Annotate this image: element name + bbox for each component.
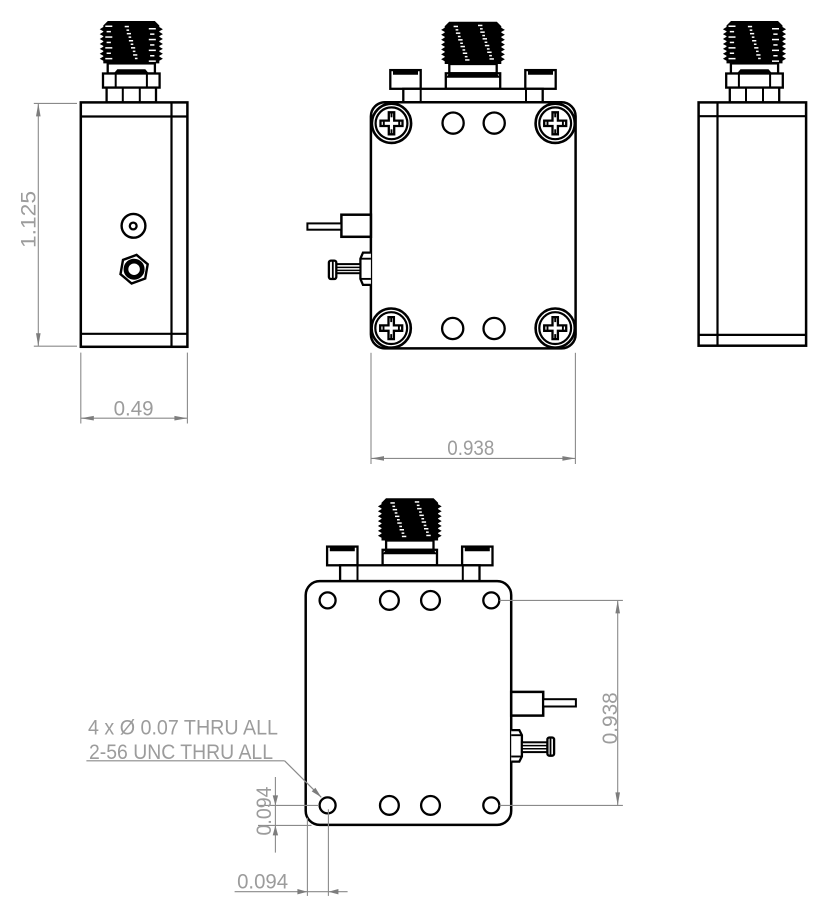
svg-text:0.094: 0.094 xyxy=(253,786,276,835)
svg-text:0.49: 0.49 xyxy=(114,398,154,421)
svg-text:1.125: 1.125 xyxy=(17,191,40,248)
svg-text:0.938: 0.938 xyxy=(599,692,622,744)
svg-text:0.938: 0.938 xyxy=(447,437,494,460)
svg-text:4 x Ø 0.07 THRU ALL: 4 x Ø 0.07 THRU ALL xyxy=(88,717,278,740)
svg-text:0.094: 0.094 xyxy=(237,870,288,893)
